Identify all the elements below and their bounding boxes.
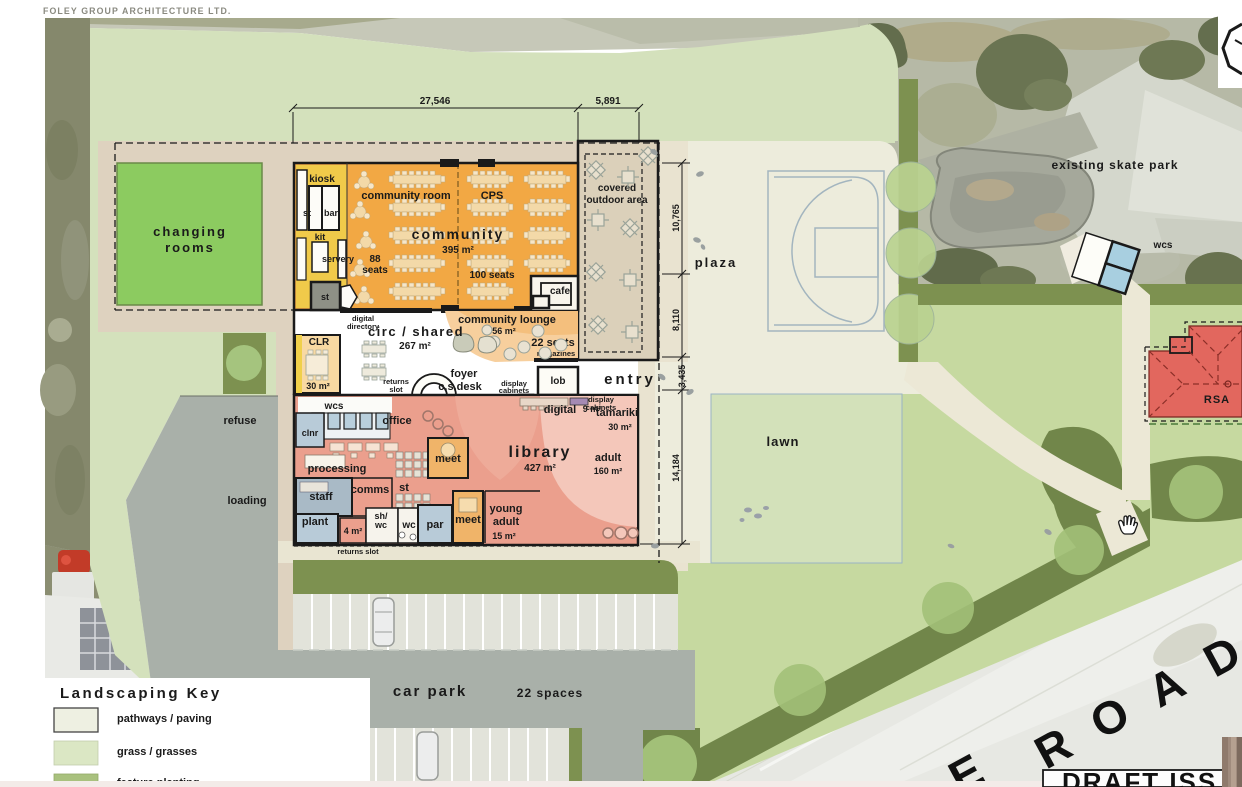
svg-text:community room: community room: [361, 190, 450, 202]
svg-text:c.s.desk: c.s.desk: [438, 381, 482, 393]
svg-text:staff: staff: [309, 491, 333, 503]
svg-text:returns slot: returns slot: [337, 547, 379, 556]
svg-text:22 spaces: 22 spaces: [517, 686, 583, 700]
svg-text:rooms: rooms: [165, 240, 215, 255]
svg-text:4 m²: 4 m²: [344, 526, 363, 536]
svg-text:community lounge: community lounge: [458, 314, 556, 326]
svg-text:community: community: [412, 226, 505, 242]
svg-text:existing skate park: existing skate park: [1051, 158, 1178, 172]
svg-text:160 m²: 160 m²: [594, 466, 623, 476]
svg-text:395 m²: 395 m²: [442, 245, 474, 256]
svg-text:kiosk: kiosk: [309, 174, 335, 185]
svg-text:tamariki: tamariki: [596, 407, 638, 419]
svg-text:changing: changing: [153, 224, 227, 239]
svg-text:office: office: [382, 415, 411, 427]
svg-text:adult: adult: [595, 452, 622, 464]
svg-text:88: 88: [369, 254, 381, 265]
svg-text:wc: wc: [374, 520, 387, 530]
svg-text:covered: covered: [598, 183, 636, 194]
svg-text:CLR: CLR: [309, 337, 330, 348]
svg-text:clnr: clnr: [302, 428, 319, 438]
svg-text:grass / grasses: grass / grasses: [117, 746, 197, 758]
svg-text:14,184: 14,184: [671, 454, 681, 482]
svg-text:30 m²: 30 m²: [306, 381, 330, 391]
svg-text:slot: slot: [389, 385, 403, 394]
svg-text:processing: processing: [308, 463, 367, 475]
svg-text:3,435: 3,435: [677, 365, 687, 388]
svg-text:wcs: wcs: [324, 401, 344, 412]
svg-text:servery: servery: [322, 254, 354, 264]
svg-text:bar: bar: [324, 208, 339, 218]
svg-text:foyer: foyer: [451, 368, 479, 380]
svg-text:young: young: [490, 503, 523, 515]
svg-text:kit: kit: [315, 232, 326, 242]
svg-text:seats: seats: [362, 265, 388, 276]
svg-text:FOLEY GROUP ARCHITECTURE LTD.: FOLEY GROUP ARCHITECTURE LTD.: [43, 6, 231, 16]
svg-text:meet: meet: [455, 514, 481, 526]
svg-text:library: library: [509, 444, 572, 461]
svg-text:digital: digital: [544, 404, 576, 416]
svg-text:wc: wc: [401, 520, 416, 531]
svg-text:wcs: wcs: [1153, 240, 1173, 251]
svg-text:427 m²: 427 m²: [524, 463, 556, 474]
svg-text:lob: lob: [551, 376, 566, 387]
svg-text:loading: loading: [227, 495, 266, 507]
svg-text:15 m²: 15 m²: [492, 531, 516, 541]
svg-text:RSA: RSA: [1204, 394, 1230, 406]
svg-text:st: st: [321, 292, 329, 302]
svg-text:DRAFT ISS: DRAFT ISS: [1062, 767, 1217, 787]
svg-text:30 m²: 30 m²: [608, 422, 632, 432]
svg-text:lawn: lawn: [767, 434, 800, 449]
svg-text:8,110: 8,110: [671, 309, 681, 331]
svg-text:56 m²: 56 m²: [492, 326, 516, 336]
svg-text:st: st: [399, 482, 409, 494]
svg-text:st: st: [303, 208, 311, 218]
svg-text:plaza: plaza: [695, 255, 738, 270]
svg-text:100 seats: 100 seats: [469, 270, 514, 281]
svg-text:adult: adult: [493, 516, 520, 528]
svg-text:comms: comms: [351, 484, 390, 496]
svg-text:plant: plant: [302, 516, 329, 528]
svg-text:circ / shared: circ / shared: [368, 324, 464, 339]
svg-text:CPS: CPS: [481, 190, 504, 202]
svg-text:car park: car park: [393, 683, 467, 700]
svg-text:entry: entry: [604, 371, 656, 388]
svg-text:22 seats: 22 seats: [531, 337, 574, 349]
svg-text:cafe: cafe: [550, 286, 570, 297]
svg-text:pathways / paving: pathways / paving: [117, 713, 212, 725]
svg-text:10,765: 10,765: [671, 204, 681, 232]
svg-text:267 m²: 267 m²: [399, 341, 431, 352]
svg-text:par: par: [426, 519, 444, 531]
svg-text:5,891: 5,891: [595, 96, 620, 107]
svg-text:refuse: refuse: [223, 415, 256, 427]
svg-text:Landscaping Key: Landscaping Key: [60, 685, 222, 702]
svg-text:outdoor area: outdoor area: [586, 195, 648, 206]
svg-text:27,546: 27,546: [420, 96, 451, 107]
svg-text:cabinets: cabinets: [499, 386, 529, 395]
